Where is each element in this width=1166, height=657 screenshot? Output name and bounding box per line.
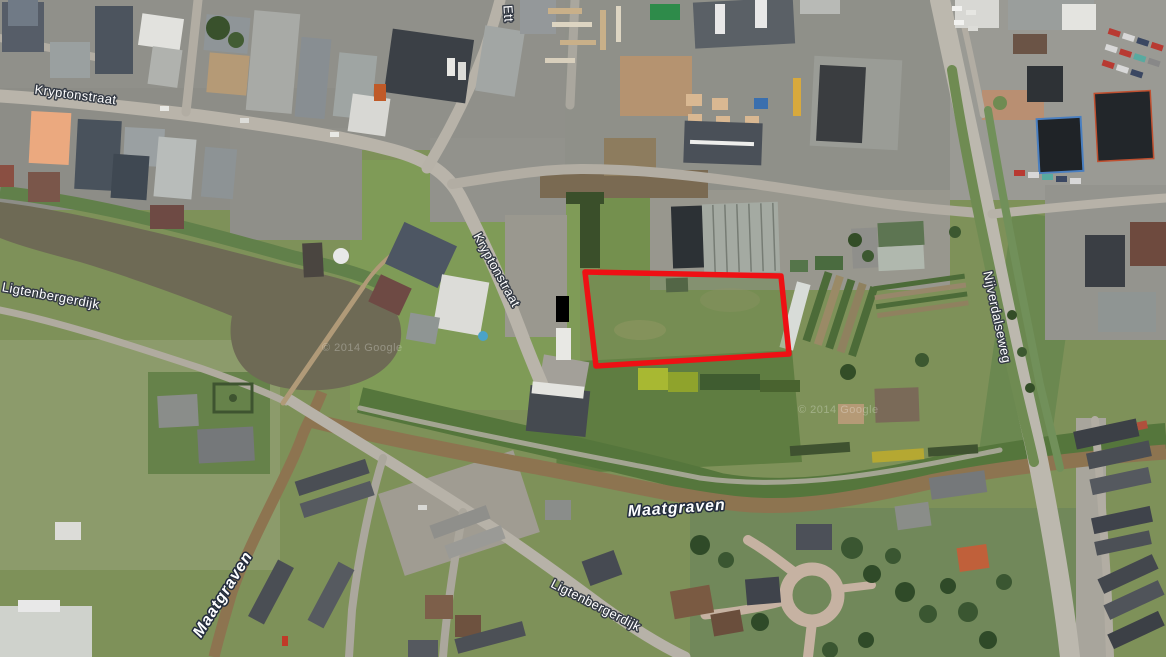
water-basin <box>671 205 705 268</box>
parcel-texture <box>614 320 666 340</box>
satellite-map-viewport[interactable]: © 2014 Google © 2014 Google Kryptonstraa… <box>0 0 1166 657</box>
google-watermark: © 2014 Google <box>798 404 879 416</box>
parcel-fill <box>585 272 789 366</box>
highlight-overlay <box>585 272 789 366</box>
google-watermark: © 2014 Google <box>322 342 403 354</box>
road-label-partial-top: Ett <box>500 5 516 23</box>
parcel-texture <box>700 288 760 312</box>
satellite-map[interactable]: © 2014 Google © 2014 Google Kryptonstraa… <box>0 0 1166 657</box>
